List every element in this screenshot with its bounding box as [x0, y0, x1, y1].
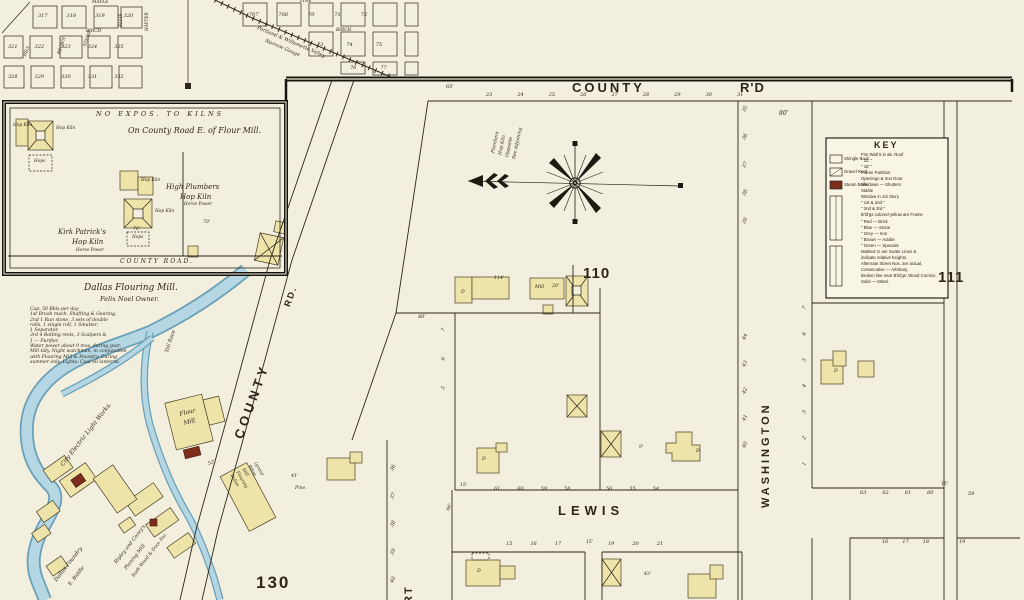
block-number: 75 — [376, 42, 382, 48]
block-number: 325 — [114, 44, 124, 50]
block-number: 317 — [38, 13, 48, 19]
county-rd-lot-numbers: 232425262728293031 — [486, 92, 743, 98]
dimension-9: 9' — [639, 446, 643, 451]
lot-number-59: 59 — [968, 492, 974, 497]
lot-number: 31 — [737, 92, 743, 98]
bottom-lots-far-right: 161718 — [882, 539, 929, 545]
lot-number: 40 — [741, 441, 749, 449]
lot-number: 39 — [389, 548, 397, 556]
block-number: 76 — [350, 65, 356, 71]
lot-number: 27 — [612, 92, 618, 98]
dimension-70-a: 70' — [133, 228, 140, 233]
plat-right-row1: 707708707172 — [249, 12, 367, 18]
dimension-80-top: 80' — [779, 111, 788, 117]
plat-right-row3: 7677 — [350, 65, 387, 71]
street-label-hayter: HAYTER — [146, 12, 150, 31]
lot-number: 55 — [629, 486, 635, 492]
mill-note-line: summer only. Lights: Coal oil lanterns. — [30, 360, 127, 365]
kirk-patricks-label-line3: Horse Power — [76, 249, 104, 253]
block-number: 324 — [88, 44, 98, 50]
lot-number: 18 — [923, 539, 929, 545]
dwelling-mark: D — [834, 370, 838, 375]
inset-header: NO EXPOS. TO KILNS — [96, 111, 224, 118]
block-number-111: 111 — [938, 270, 964, 285]
dimension-114: 114' — [494, 277, 504, 282]
block-number: 323 — [61, 44, 71, 50]
block-number: 708 — [279, 12, 289, 18]
lot-number: 38 — [389, 520, 397, 528]
lot-number-19: 19 — [959, 540, 965, 545]
block-number: 331 — [88, 74, 98, 80]
block-number: 70 — [308, 12, 314, 18]
block-number: 319 — [95, 13, 105, 19]
hop-kiln-small-label: Hop Kiln — [56, 127, 75, 131]
mill-mark: Mill — [535, 286, 544, 291]
street-label-birch-east: BIRCH — [336, 29, 351, 33]
plat-left-row1: 317318319320 — [38, 13, 133, 19]
key-row: Solid — Metal. — [861, 279, 937, 285]
block-number: 71 — [334, 12, 340, 18]
lot-ticks-110-west: 765 — [442, 327, 445, 391]
hop-kiln-small-label: Hop Kiln — [155, 210, 174, 214]
dimension-80-west: 80' — [418, 315, 426, 320]
road-marker — [185, 83, 191, 89]
block-number: 77 — [380, 65, 386, 71]
street-label-pine: PINE — [300, 0, 312, 4]
hops-label: Hops — [132, 236, 143, 240]
street-label-county-rd: R'D — [740, 81, 765, 94]
lot-number: 17 — [902, 539, 908, 545]
mill-note-title: Dallas Flouring Mill. — [84, 284, 178, 293]
street-label-court-partial: RT — [404, 585, 415, 600]
plat-left-row3: 328329330331332 — [8, 74, 124, 80]
block-number: 320 — [124, 13, 134, 19]
dwelling-mark: D — [482, 458, 486, 463]
lot-number: 36 — [389, 464, 397, 472]
block-number: 74 — [346, 42, 352, 48]
lot-number: 26 — [580, 92, 586, 98]
kirk-patricks-label-line2: Hop Kiln — [72, 239, 103, 246]
lot-number: 30 — [706, 92, 712, 98]
lot-number: 60 — [927, 490, 933, 496]
lot-number: 35 — [741, 105, 749, 113]
dimension-15-a: 15' — [460, 484, 467, 489]
lot-number: 38 — [741, 189, 749, 197]
lewis-lots-ne: 565554 — [606, 486, 659, 492]
block-number: 72 — [361, 12, 367, 18]
lot-number: 24 — [517, 92, 523, 98]
high-plumbers-label-line2: Hop Kiln — [180, 194, 211, 201]
high-plumbers-label-line1: High Plumbers — [166, 184, 219, 191]
note-pine-tree: Pine. — [295, 487, 307, 492]
lot-ticks-110-east-upper: 3536373839 — [742, 106, 748, 224]
block-number: 330 — [61, 74, 71, 80]
lot-number: 17 — [555, 541, 561, 547]
lot-number: 36 — [741, 133, 749, 141]
lot-number: 28 — [643, 92, 649, 98]
lot-number: 23 — [486, 92, 492, 98]
high-plumbers-label-line3: Horse Power — [184, 203, 212, 207]
lot-number: 16 — [530, 541, 536, 547]
lot-number: 61 — [905, 490, 911, 496]
key-title: KEY — [874, 141, 899, 150]
lot-number: 61 — [494, 486, 500, 492]
hop-kiln-small-label: Hop Kiln — [141, 179, 160, 183]
block-number: 318 — [67, 13, 77, 19]
lot-number: 59 — [541, 486, 547, 492]
lewis-lots-nw: 61605958 — [494, 486, 571, 492]
lot-number: 21 — [657, 541, 663, 547]
lewis-lots-far: 63626160 — [860, 490, 934, 496]
lot-number: 20 — [632, 541, 638, 547]
dimension-70-b: 70' — [203, 221, 210, 226]
lot-number: 19 — [608, 541, 614, 547]
block-number: 322 — [35, 44, 45, 50]
lot-number: 25 — [549, 92, 555, 98]
dimension-43: 43' — [644, 573, 651, 578]
street-label-washington: WASHINGTON — [761, 402, 772, 508]
mill-note-owner: Felix Noel Owner. — [100, 296, 159, 303]
lot-number: 37 — [389, 492, 397, 500]
dimension-20: 20' — [552, 285, 559, 290]
hops-label: Hops — [34, 160, 45, 164]
lot-number: 58 — [564, 486, 570, 492]
lot-number: 56 — [606, 486, 612, 492]
lot-number: 63 — [860, 490, 866, 496]
plat-left-row2: 321322323324325 — [8, 44, 124, 50]
lot-number: 42 — [741, 387, 749, 395]
lot-number: 40 — [389, 576, 397, 584]
block-number: 329 — [35, 74, 45, 80]
lot-number: 43 — [741, 360, 749, 368]
dimension-65: 65' — [446, 85, 454, 90]
lot-ticks-110-east-lower: 4443424140 — [742, 334, 748, 448]
block-number-110: 110 — [583, 266, 610, 281]
lot-number: 37 — [741, 161, 749, 169]
bottom-lots-right: 192021 — [608, 541, 663, 547]
lot-ticks-court-east: 3637383940 — [390, 465, 396, 583]
lot-number: 62 — [882, 490, 888, 496]
lot-number: 41 — [741, 414, 749, 422]
mill-note-paragraph: Cap. 50 Bbls per day 1st Brush mach. Sha… — [30, 307, 127, 365]
hop-kiln-small-label: Hop Kiln — [13, 124, 32, 128]
street-label-maple: MAPLE — [92, 1, 108, 5]
block-number: 707 — [249, 12, 259, 18]
street-label-lewis: LEWIS — [558, 504, 624, 517]
dwelling-mark: D — [696, 450, 700, 455]
lot-number: 54 — [653, 486, 659, 492]
lot-number: 29 — [674, 92, 680, 98]
dwelling-mark: D — [477, 570, 481, 575]
lot-ticks-111-west: 7654321 — [803, 305, 806, 467]
lot-number: 15 — [506, 541, 512, 547]
block-number: 73 — [317, 42, 323, 48]
dimension-15-c: 15' — [586, 541, 593, 546]
inset-subtitle: On County Road E. of Flour Mill. — [128, 127, 261, 135]
bottom-lots-left: 151617 — [506, 541, 561, 547]
lot-number: 60 — [517, 486, 523, 492]
lot-number: 44 — [741, 333, 749, 341]
lot-number: 39 — [741, 217, 749, 225]
block-number: 321 — [8, 44, 18, 50]
kirk-patricks-label-line1: Kirk Patrick's — [58, 229, 106, 236]
block-number: 328 — [8, 74, 18, 80]
block-number-130: 130 — [256, 574, 290, 591]
sanborn-map-sheet: MAPLE BIRCH ELLIS HAYTER HILL BROWN STUM… — [0, 0, 1024, 600]
dimension-41: 41' — [291, 475, 298, 480]
dwelling-mark: D — [461, 291, 465, 296]
inset-county-road-label: COUNTY ROAD. — [120, 259, 194, 265]
dimension-15-b: 15' — [941, 483, 948, 488]
lot-number: 16 — [882, 539, 888, 545]
plat-right-row2: 737475 — [317, 42, 382, 48]
block-number: 332 — [114, 74, 124, 80]
key-rows: Fire Wall 5 in ab. Roof " 12' " " 18' " … — [861, 152, 937, 285]
